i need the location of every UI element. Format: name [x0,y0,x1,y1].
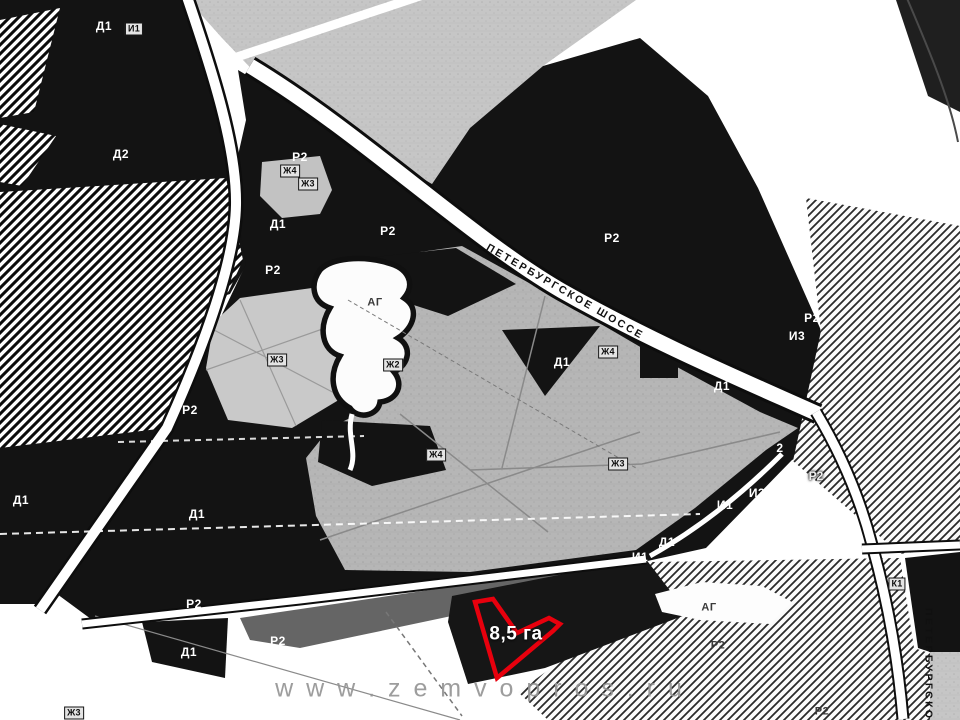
map-canvas [0,0,960,720]
scanned-zoning-map: Д1И1Д2Р2Ж4Ж3Д1Р2Р2Р2АГЖ3Ж2Д1Ж4Д1И3Р2Р2Ж4… [0,0,960,720]
